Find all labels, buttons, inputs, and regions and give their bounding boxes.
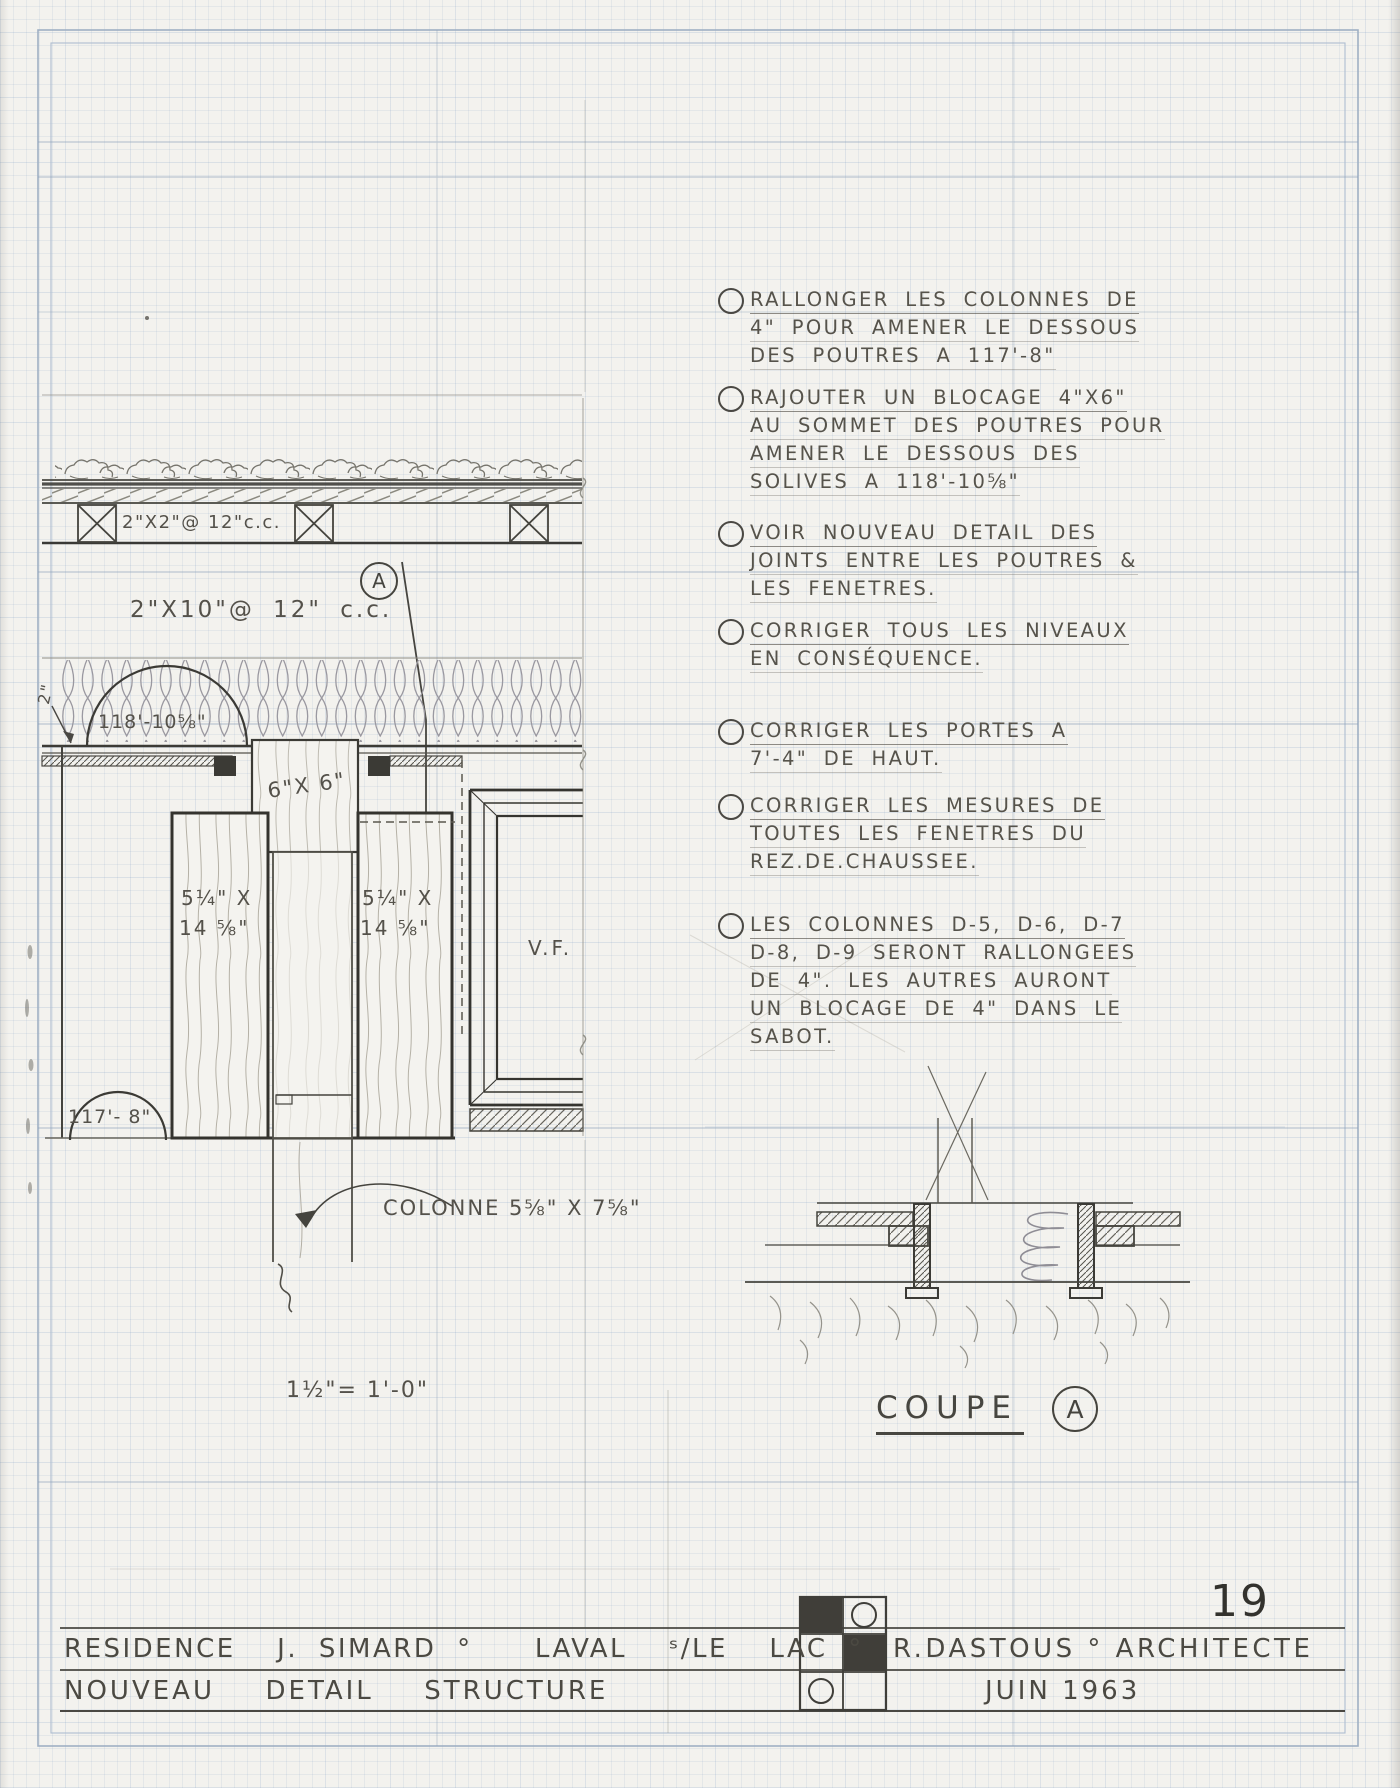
note-line: JOINTS ENTRE LES POUTRES &	[750, 547, 1138, 575]
column-label: COLONNE 5⅝" X 7⅝"	[383, 1196, 642, 1221]
title-architect: R.DASTOUS ° ARCHITECTE	[893, 1634, 1313, 1664]
note-bullet-icon	[718, 913, 744, 939]
note-line: AU SOMMET DES POUTRES POUR	[750, 412, 1165, 440]
note-line: VOIR NOUVEAU DETAIL DES	[750, 519, 1097, 547]
drawing-sheet: 2"X2"@ 12"c.c. 2"X10"@ 12" c.c. A 118'-1…	[0, 0, 1400, 1788]
coupe-marker-a: A	[1052, 1386, 1098, 1432]
note-5: CORRIGER LES PORTES A 7'-4" DE HAUT.	[712, 717, 1182, 773]
note-line: CORRIGER LES PORTES A	[750, 717, 1068, 745]
column	[273, 852, 352, 1312]
beam-left-label-2: 14 ⅝"	[179, 916, 249, 940]
note-7: LES COLONNES D-5, D-6, D-7 D-8, D-9 SERO…	[712, 911, 1182, 1051]
note-line: DES POUTRES A 117'-8"	[750, 342, 1056, 370]
beam-right	[358, 813, 452, 1138]
joists-label: 2"X10"@ 12" c.c.	[130, 597, 392, 625]
break-mark	[278, 1264, 292, 1312]
level-bottom-label: 117'- 8"	[68, 1106, 151, 1129]
title-date: JUIN 1963	[985, 1676, 1140, 1706]
soffit-right	[390, 756, 462, 766]
note-2: RAJOUTER UN BLOCAGE 4"X6" AU SOMMET DES …	[712, 384, 1182, 496]
note-line: UN BLOCAGE DE 4" DANS LE	[750, 995, 1122, 1023]
note-line: LES COLONNES D-5, D-6, D-7	[750, 911, 1125, 939]
note-bullet-icon	[718, 619, 744, 645]
note-bullet-icon	[718, 288, 744, 314]
note-bullet-icon	[718, 719, 744, 745]
beam-right-label-1: 5¼" X	[362, 886, 433, 910]
note-line: RAJOUTER UN BLOCAGE 4"X6"	[750, 384, 1127, 412]
break-line	[580, 100, 585, 1628]
note-line: REZ.DE.CHAUSSEE.	[750, 848, 979, 876]
note-line: CORRIGER TOUS LES NIVEAUX	[750, 617, 1129, 645]
window-sill	[470, 1109, 583, 1131]
gravel-layer	[55, 450, 582, 480]
note-line: RALLONGER LES COLONNES DE	[750, 286, 1139, 314]
coupe-a-detail	[745, 1066, 1190, 1368]
ground-squiggles	[770, 1296, 1169, 1368]
strapping-label: 2"X2"@ 12"c.c.	[122, 512, 281, 534]
note-line: D-8, D-9 SERONT RALLONGEES	[750, 939, 1136, 967]
note-4: CORRIGER TOUS LES NIVEAUX EN CONSÉQUENCE…	[712, 617, 1182, 673]
mullion-left	[914, 1204, 930, 1288]
sheathing-layer	[42, 489, 582, 502]
title-sheet-title: NOUVEAU DETAIL STRUCTURE	[64, 1676, 608, 1706]
paper-left-edge	[0, 0, 9, 1788]
note-line: SOLIVES A 118'-10⅝"	[750, 468, 1020, 496]
soffit-step-left	[214, 756, 236, 776]
coupe-marker-a-letter: A	[1066, 1395, 1083, 1424]
note-line: TOUTES LES FENETRES DU	[750, 820, 1086, 848]
note-line: CORRIGER LES MESURES DE	[750, 792, 1105, 820]
note-line: EN CONSÉQUENCE.	[750, 645, 983, 673]
level-top-label: 118'-10⅝"	[98, 711, 207, 734]
insulation-coil	[1021, 1212, 1068, 1280]
note-6: CORRIGER LES MESURES DE TOUTES LES FENET…	[712, 792, 1182, 876]
window-label: V.F.	[528, 936, 572, 960]
sheet-number: 19	[1210, 1576, 1270, 1629]
note-bullet-icon	[718, 521, 744, 547]
scale-label: 1½"= 1'-0"	[286, 1378, 429, 1404]
beam-right-label-2: 14 ⅝"	[360, 916, 430, 940]
beam-left	[172, 813, 268, 1138]
section-marker-a-letter: A	[372, 569, 386, 593]
window-frame	[470, 790, 583, 1131]
soffit-step-right	[368, 756, 390, 776]
note-line: DE 4". LES AUTRES AURONT	[750, 967, 1112, 995]
soffit-left	[42, 756, 232, 766]
note-line: AMENER LE DESSOUS DES	[750, 440, 1080, 468]
note-line: 7'-4" DE HAUT.	[750, 745, 942, 773]
note-3: VOIR NOUVEAU DETAIL DES JOINTS ENTRE LES…	[712, 519, 1182, 603]
paper-edge-marks	[25, 945, 34, 1194]
note-bullet-icon	[718, 386, 744, 412]
title-project: RESIDENCE J. SIMARD ° LAVAL ˢ/LE LAC °	[64, 1634, 864, 1664]
note-1: RALLONGER LES COLONNES DE 4" POUR AMENER…	[712, 286, 1182, 370]
note-line: 4" POUR AMENER LE DESSOUS	[750, 314, 1139, 342]
coupe-title: COUPE	[876, 1390, 1024, 1435]
section-marker-a: A	[360, 562, 398, 600]
paper-right-edge	[1388, 0, 1400, 1788]
beam-left-label-1: 5¼" X	[181, 886, 252, 910]
mullion-right	[1078, 1204, 1094, 1288]
note-line: LES FENETRES.	[750, 575, 937, 603]
note-bullet-icon	[718, 794, 744, 820]
note-line: SABOT.	[750, 1023, 835, 1051]
